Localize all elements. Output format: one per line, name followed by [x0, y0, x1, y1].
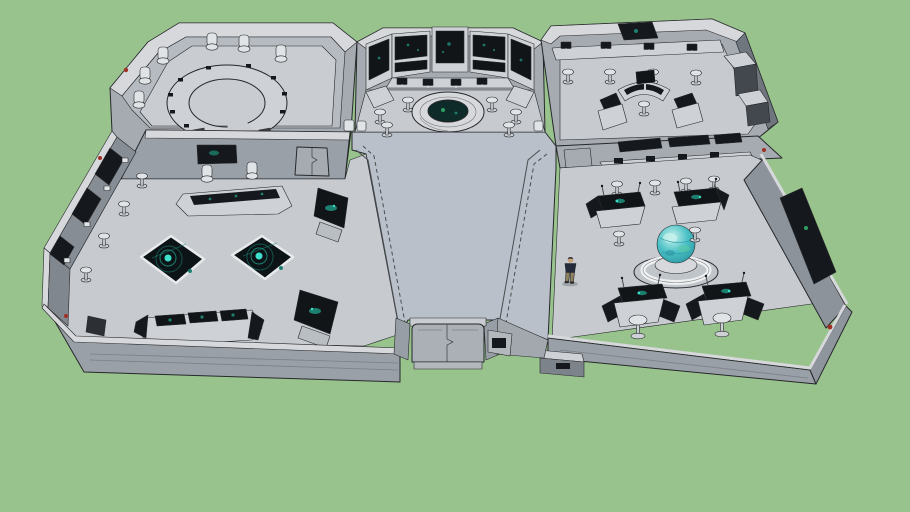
monitoring-room	[541, 19, 778, 146]
conference-chair	[157, 47, 169, 64]
red-indicator-light	[828, 325, 833, 330]
red-indicator-light	[124, 68, 128, 72]
green-indicator-light	[804, 226, 808, 230]
conference-room	[110, 23, 357, 179]
conference-chair	[275, 45, 287, 62]
entrance-door	[412, 324, 484, 362]
model-viewport[interactable]	[0, 0, 910, 512]
door-side-panel	[488, 330, 512, 356]
zigzag-door	[295, 147, 329, 176]
holo-ring-platform	[412, 92, 484, 132]
wall-end-cap	[534, 121, 543, 131]
conference-chair	[238, 35, 250, 52]
ceiling-screen-glow	[634, 29, 638, 33]
command-center	[355, 27, 545, 137]
desk-chair	[201, 165, 213, 182]
door-flank-left	[394, 318, 410, 360]
wall-screen-glow	[209, 151, 219, 156]
door-step	[414, 362, 482, 369]
red-indicator-light	[64, 314, 68, 318]
conference-chair	[139, 67, 151, 84]
conference-chair	[206, 33, 218, 50]
red-indicator-light	[762, 148, 766, 152]
conference-chair	[133, 91, 145, 108]
wall-end-cap	[344, 120, 354, 131]
wall-end-cap	[357, 121, 366, 131]
red-indicator-light	[98, 156, 102, 160]
front-wall-top-band	[145, 130, 350, 140]
desk-chair	[246, 162, 258, 179]
